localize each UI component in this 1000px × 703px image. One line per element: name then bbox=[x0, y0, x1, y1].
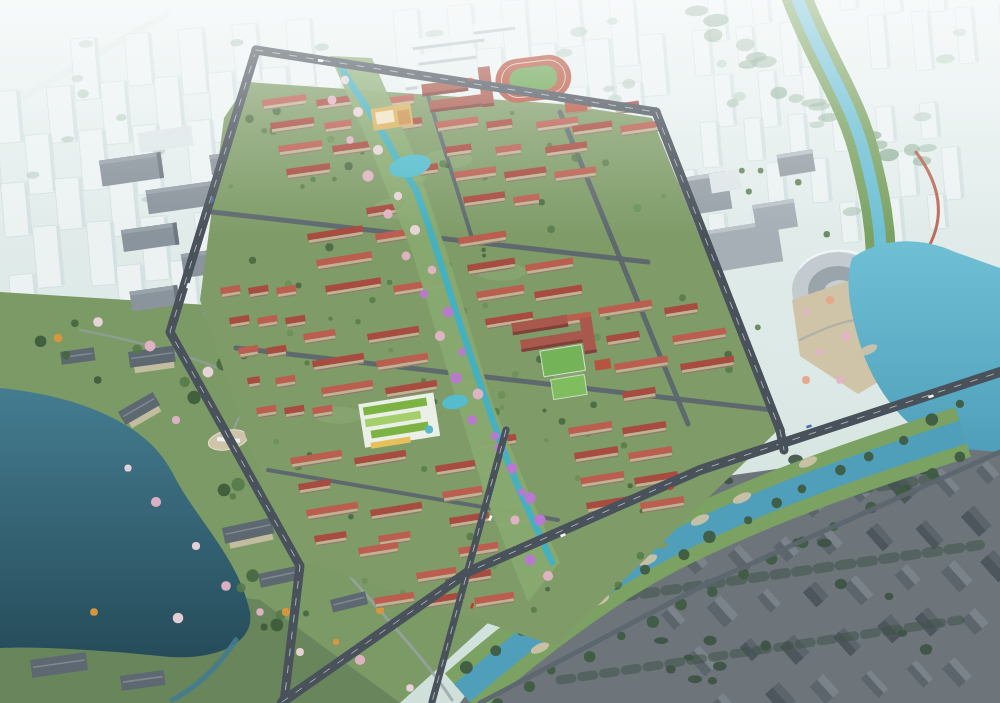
masterplan-scene bbox=[0, 0, 1000, 703]
aerial-rendering bbox=[0, 0, 1000, 703]
atmospheric-haze bbox=[0, 0, 1000, 235]
